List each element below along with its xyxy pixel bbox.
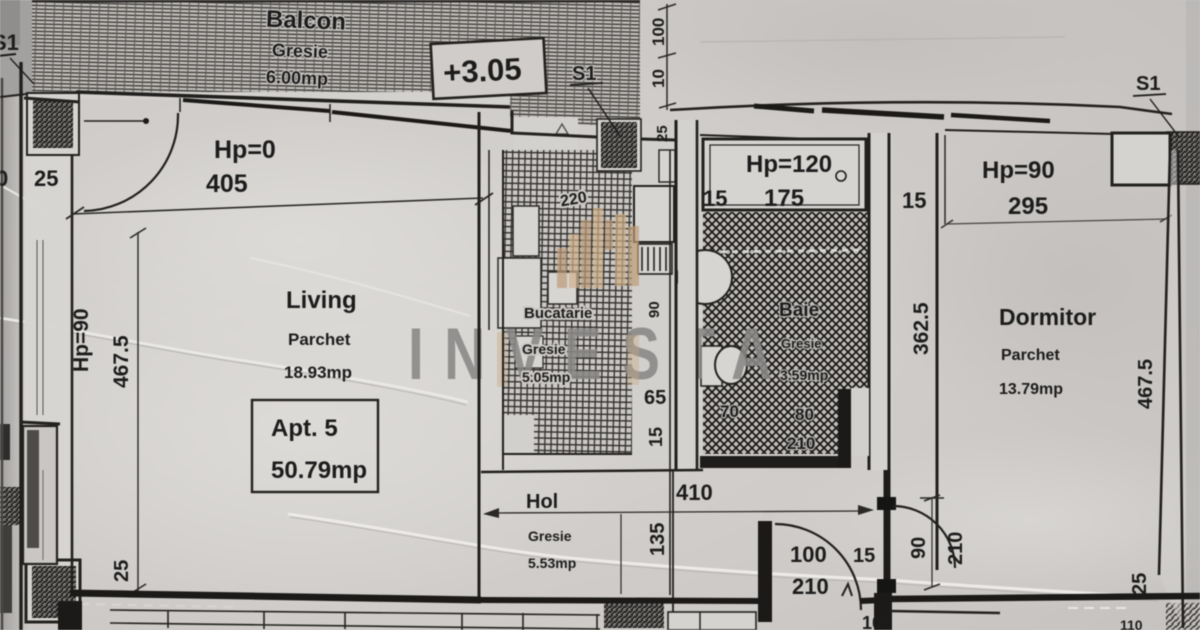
svg-text:65: 65 xyxy=(644,387,666,409)
svg-text:15: 15 xyxy=(853,545,875,567)
svg-text:INVESTA: INVESTA xyxy=(408,313,792,394)
svg-text:467.5: 467.5 xyxy=(1135,359,1157,409)
svg-text:50.79mp: 50.79mp xyxy=(271,457,367,484)
svg-text:410: 410 xyxy=(676,480,713,505)
svg-text:15: 15 xyxy=(646,427,666,447)
svg-text:Bucatarie: Bucatarie xyxy=(524,305,592,322)
svg-text:135: 135 xyxy=(647,523,669,556)
svg-text:0: 0 xyxy=(0,166,8,191)
svg-text:3.59mp: 3.59mp xyxy=(780,367,828,383)
svg-text:Apt. 5: Apt. 5 xyxy=(271,415,338,442)
svg-text:5.05mp: 5.05mp xyxy=(522,369,570,385)
svg-text:6.00mp: 6.00mp xyxy=(266,67,329,89)
svg-text:10: 10 xyxy=(649,69,668,88)
svg-text:295: 295 xyxy=(1008,193,1048,220)
svg-text:405: 405 xyxy=(206,170,248,198)
svg-text:Living: Living xyxy=(286,287,357,314)
svg-text:15: 15 xyxy=(703,186,727,211)
svg-text:100: 100 xyxy=(649,18,668,46)
svg-text:Hp=120: Hp=120 xyxy=(746,151,832,178)
svg-text:25: 25 xyxy=(1129,573,1151,595)
svg-text:362.5: 362.5 xyxy=(910,302,933,355)
svg-text:25: 25 xyxy=(654,125,671,142)
svg-text:25: 25 xyxy=(111,560,133,582)
svg-text:+3.05: +3.05 xyxy=(442,51,522,90)
svg-text:15: 15 xyxy=(902,188,926,213)
svg-text:90: 90 xyxy=(908,537,930,559)
svg-text:Parchet: Parchet xyxy=(1001,347,1060,364)
svg-text:Baie: Baie xyxy=(779,300,819,321)
svg-text:Hp=0: Hp=0 xyxy=(214,136,276,164)
svg-text:25: 25 xyxy=(34,166,58,191)
svg-text:S1: S1 xyxy=(572,63,596,85)
svg-text:70: 70 xyxy=(720,402,739,421)
svg-text:467.5: 467.5 xyxy=(110,335,133,388)
svg-text:Hp=90: Hp=90 xyxy=(982,157,1055,184)
svg-text:13.79mp: 13.79mp xyxy=(999,381,1063,398)
svg-text:S1: S1 xyxy=(1136,73,1160,95)
svg-text:110: 110 xyxy=(1120,617,1143,630)
svg-text:Gresie: Gresie xyxy=(781,336,821,351)
svg-text:210: 210 xyxy=(792,574,829,599)
svg-text:10: 10 xyxy=(862,613,882,630)
svg-text:5.53mp: 5.53mp xyxy=(528,555,576,571)
svg-text:18.93mp: 18.93mp xyxy=(284,363,352,382)
svg-text:210: 210 xyxy=(787,434,815,453)
svg-text:Gresie: Gresie xyxy=(522,341,566,357)
svg-text:Dormitor: Dormitor xyxy=(999,304,1096,330)
svg-text:Parchet: Parchet xyxy=(288,330,351,349)
svg-text:Gresie: Gresie xyxy=(528,528,572,544)
svg-text:Hp=90: Hp=90 xyxy=(70,308,93,372)
svg-text:S1: S1 xyxy=(0,30,19,55)
svg-text:Balcon: Balcon xyxy=(266,6,347,36)
svg-text:Gresie: Gresie xyxy=(272,40,329,62)
svg-text:90: 90 xyxy=(646,301,663,318)
svg-text:175: 175 xyxy=(764,185,804,212)
svg-text:80: 80 xyxy=(795,405,814,424)
svg-text:100: 100 xyxy=(790,542,827,567)
svg-text:210: 210 xyxy=(945,532,967,565)
svg-text:Hol: Hol xyxy=(526,491,558,513)
